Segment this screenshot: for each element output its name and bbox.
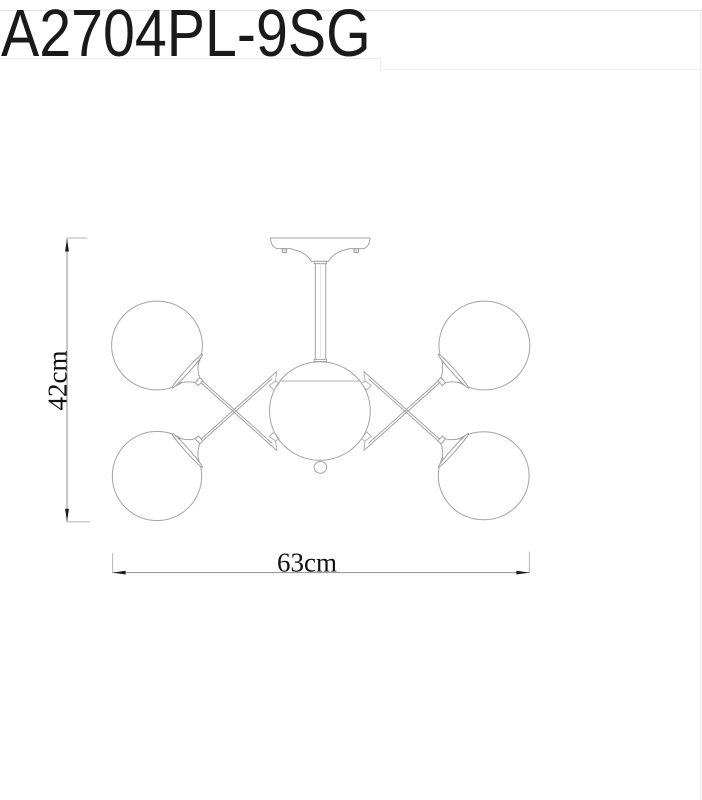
svg-text:42cm: 42cm [43, 351, 73, 411]
svg-text:63cm: 63cm [277, 548, 337, 578]
